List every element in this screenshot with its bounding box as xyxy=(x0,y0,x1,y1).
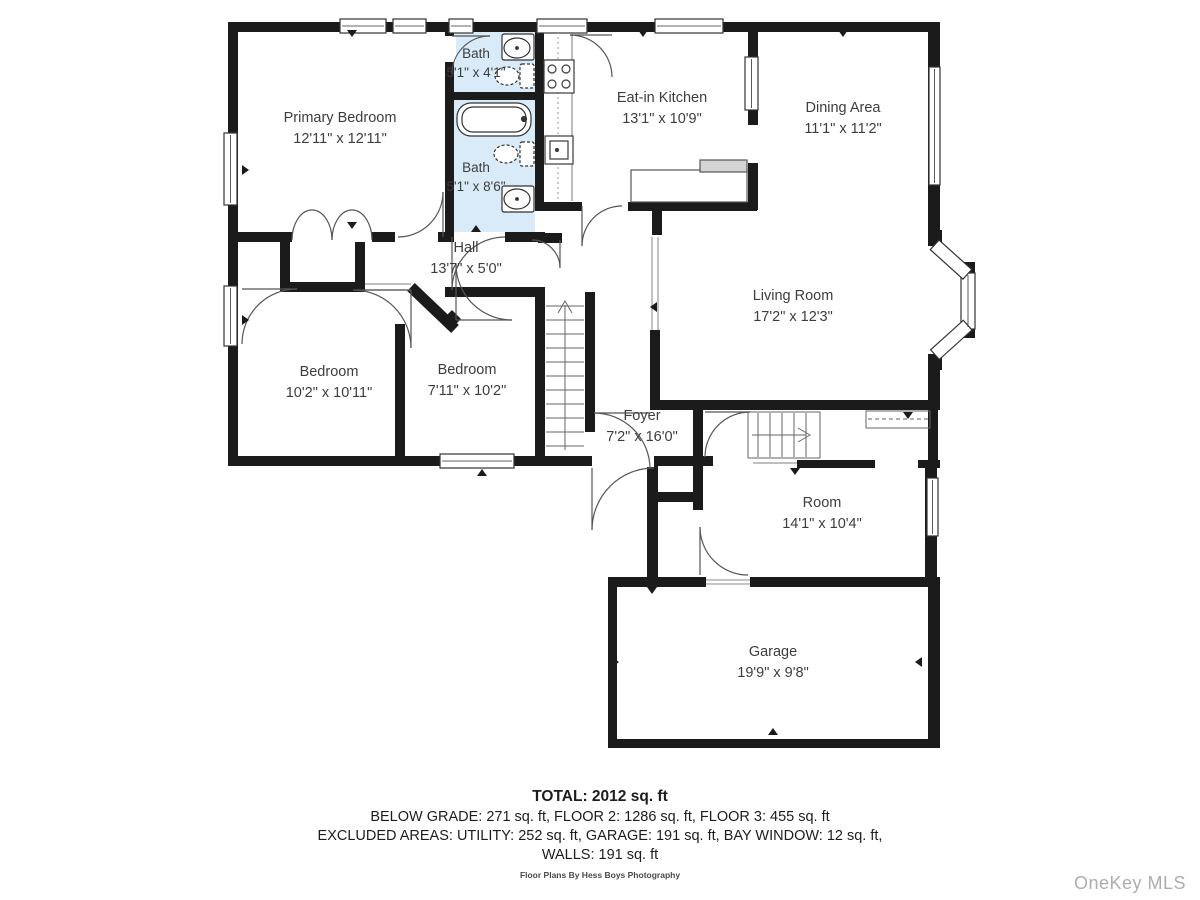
room-name: Eat-in Kitchen xyxy=(617,90,707,106)
room-dims: 7'2" x 16'0" xyxy=(606,427,677,448)
room-name: Primary Bedroom xyxy=(284,110,397,126)
room-dims: 12'11" x 12'11" xyxy=(284,129,397,150)
room-name: Room xyxy=(803,495,842,511)
room-name: Bedroom xyxy=(300,364,359,380)
room-label-bedroom-left: Bedroom 10'2" x 10'11" xyxy=(286,362,373,404)
room-name: Dining Area xyxy=(806,100,881,116)
room-name: Bath xyxy=(462,46,490,61)
room-name: Living Room xyxy=(753,288,834,304)
room-label-eat-in-kitchen: Eat-in Kitchen 13'1" x 10'9" xyxy=(617,88,707,130)
room-dims: 11'1" x 11'2" xyxy=(804,119,881,140)
room-dims: 13'7" x 5'0" xyxy=(430,259,501,280)
room-name: Bedroom xyxy=(438,362,497,378)
room-label-dining-area: Dining Area 11'1" x 11'2" xyxy=(804,98,881,140)
room-name: Garage xyxy=(749,644,797,660)
room-label-living-room: Living Room 17'2" x 12'3" xyxy=(753,286,834,328)
room-label-garage: Garage 19'9" x 9'8" xyxy=(737,642,808,684)
room-label-bath-upper: Bath 5'1" x 4'1" xyxy=(446,44,505,82)
room-name: Hall xyxy=(454,240,479,256)
stairs-vertical xyxy=(546,301,584,450)
counter-peninsula xyxy=(631,170,747,202)
watermark-text: OneKey MLS xyxy=(1074,873,1186,894)
floor-plan-page: Primary Bedroom 12'11" x 12'11" Bath 5'1… xyxy=(0,0,1200,900)
room-dims: 19'9" x 9'8" xyxy=(737,663,808,684)
room-label-bath-lower: Bath 5'1" x 8'6" xyxy=(446,158,505,196)
floors-area-text: BELOW GRADE: 271 sq. ft, FLOOR 2: 1286 s… xyxy=(0,809,1200,825)
room-label-bedroom-center: Bedroom 7'11" x 10'2" xyxy=(428,360,506,402)
stairs-horizontal xyxy=(748,412,820,458)
floor-plan-canvas xyxy=(0,0,1200,900)
room-label-hall: Hall 13'7" x 5'0" xyxy=(430,238,501,280)
stove-icon xyxy=(544,60,574,93)
room-label-primary-bedroom: Primary Bedroom 12'11" x 12'11" xyxy=(284,108,397,150)
room-label-foyer: Foyer 7'2" x 16'0" xyxy=(606,406,677,448)
room-dims: 10'2" x 10'11" xyxy=(286,383,373,404)
walls-area-text: WALLS: 191 sq. ft xyxy=(0,847,1200,863)
excluded-area-text: EXCLUDED AREAS: UTILITY: 252 sq. ft, GAR… xyxy=(0,828,1200,844)
room-name: Bath xyxy=(462,160,490,175)
room-dims: 13'1" x 10'9" xyxy=(617,109,707,130)
room-dims: 14'1" x 10'4" xyxy=(782,514,862,535)
room-label-room: Room 14'1" x 10'4" xyxy=(782,493,862,535)
credit-text: Floor Plans By Hess Boys Photography xyxy=(0,870,1200,880)
room-dims: 5'1" x 4'1" xyxy=(446,63,505,82)
room-dims: 5'1" x 8'6" xyxy=(446,177,505,196)
landing-dashed xyxy=(866,411,930,428)
total-area-text: TOTAL: 2012 sq. ft xyxy=(0,788,1200,806)
room-dims: 7'11" x 10'2" xyxy=(428,381,506,402)
counter-top xyxy=(700,160,747,172)
room-dims: 17'2" x 12'3" xyxy=(753,307,834,328)
area-summary: TOTAL: 2012 sq. ft BELOW GRADE: 271 sq. … xyxy=(0,788,1200,866)
room-name: Foyer xyxy=(623,408,660,424)
